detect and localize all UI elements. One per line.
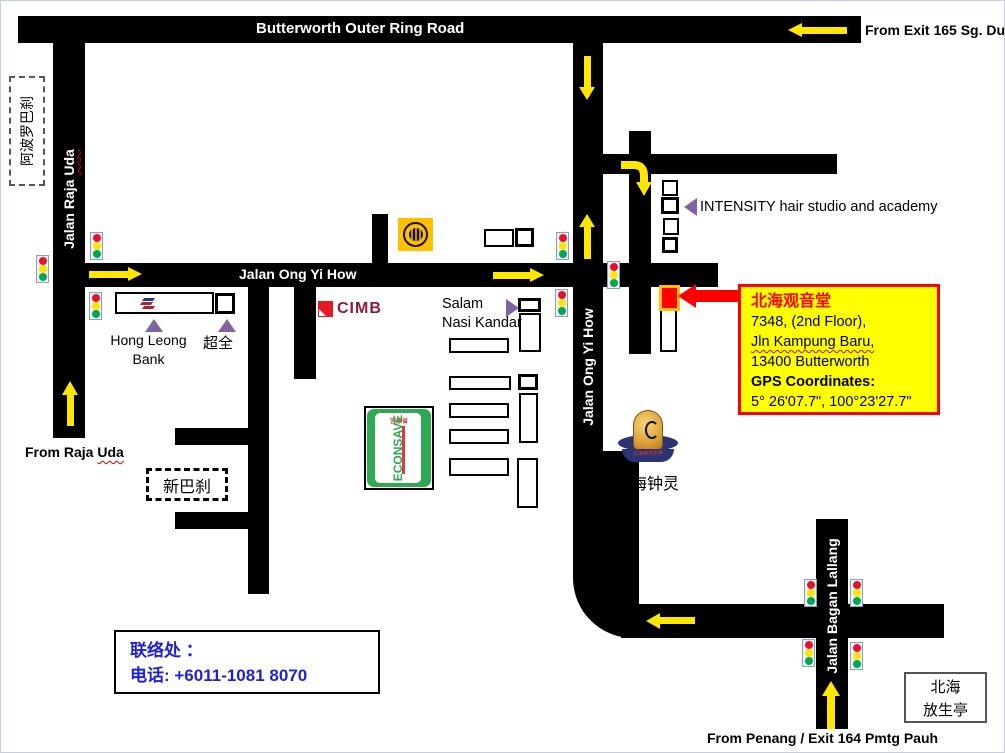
traffic-light <box>802 639 815 667</box>
destination-address-3: 13400 Butterworth <box>751 352 927 372</box>
traffic-light <box>89 292 102 320</box>
traffic-light <box>607 261 620 289</box>
new-market-box: 新巴刹 <box>146 468 228 501</box>
traffic-light <box>804 579 817 607</box>
building-chao-quan <box>215 293 235 314</box>
building-intensity <box>661 197 679 214</box>
destination-arrow <box>695 290 739 302</box>
intensity-label: INTENSITY hair studio and academy <box>700 199 937 215</box>
fang-sheng-ting-box: 北海 放生亭 <box>904 672 987 723</box>
building-hong-leong-bank <box>115 292 214 314</box>
building <box>449 376 511 390</box>
contact-line2: 电话: +6011-1081 8070 <box>130 663 364 688</box>
pointer-left-intensity-icon <box>684 198 697 216</box>
contact-line1: 联络处 ： <box>130 638 364 663</box>
traffic-light <box>850 579 863 607</box>
traffic-light <box>556 232 569 260</box>
gps-label: GPS Coordinates: <box>751 372 927 392</box>
building <box>662 237 678 253</box>
road-west-stub-1 <box>175 428 248 445</box>
chung-ling-label: 北海钟灵 <box>615 470 679 494</box>
building <box>449 429 509 444</box>
road-top-stub <box>372 214 388 263</box>
hong-leong-bank-label: Hong Leong Bank <box>106 331 191 369</box>
apollo-market-label: 阿波罗巴刹 <box>17 96 37 166</box>
road-west-stub-2 <box>175 512 248 529</box>
from-exit-165-label: From Exit 165 Sg. Dua <box>865 22 1005 38</box>
building <box>518 374 538 390</box>
chao-quan-label: 超全 <box>203 332 233 353</box>
building-destination-block <box>660 308 677 352</box>
building <box>519 393 538 443</box>
econsave-store: 宜康省 ECONSAVE <box>364 406 434 490</box>
traffic-light <box>850 642 863 670</box>
econsave-label: ECONSAVE <box>391 411 405 485</box>
building <box>484 229 514 247</box>
from-raja-uda-label: From Raja Uda <box>25 444 124 460</box>
traffic-light <box>90 232 103 260</box>
destination-name: 北海观音堂 <box>751 292 927 312</box>
cimb-logo-icon <box>318 301 333 317</box>
chung-ling-badge-logo-icon: 北海钟灵中学 <box>618 409 678 467</box>
building <box>519 313 541 352</box>
traffic-light <box>555 289 568 317</box>
destination-address-1: 7348, (2nd Floor), <box>751 312 927 332</box>
building <box>449 403 509 418</box>
building <box>449 338 509 353</box>
cimb-label: CIMB <box>337 300 382 318</box>
pointer-up-chao-quan-icon <box>218 319 236 332</box>
building <box>515 228 534 247</box>
bagan-lallang-label: Jalan Bagan Lallang <box>824 521 840 691</box>
hong-leong-logo-icon <box>140 296 156 312</box>
maybank-tiger-logo-icon <box>398 218 433 251</box>
building <box>663 218 679 235</box>
road-cimb-stub <box>294 287 316 379</box>
ong-yi-how-horizontal-label: Jalan Ong Yi How <box>239 266 356 282</box>
building <box>449 458 509 476</box>
apollo-market-box: 阿波罗巴刹 <box>9 76 45 186</box>
destination-address-2: Jln Kampung Baru, <box>751 332 874 352</box>
ong-yi-how-vertical-label: Jalan Ong Yi How <box>580 302 596 432</box>
raja-uda-label: Jalan Raja Uda <box>61 139 77 259</box>
destination-arrow-head-icon <box>678 284 696 308</box>
building <box>662 180 678 196</box>
arrow-turn-right-curved <box>619 156 653 198</box>
building <box>517 458 538 508</box>
ring-road-label: Butterworth Outer Ring Road <box>256 20 464 37</box>
direction-map: Butterworth Outer Ring Road Jalan Ong Yi… <box>0 0 1005 753</box>
contact-box: 联络处 ： 电话: +6011-1081 8070 <box>114 630 380 694</box>
new-market-label: 新巴刹 <box>163 473 211 497</box>
destination-callout: 北海观音堂 7348, (2nd Floor), Jln Kampung Bar… <box>738 284 940 415</box>
gps-value: 5° 26'07.7", 100°23'27.7" <box>751 392 927 412</box>
from-penang-label: From Penang / Exit 164 Pmtg Pauh <box>707 730 938 746</box>
salam-nasi-kandar-label: Salam Nasi Kandar <box>442 295 522 333</box>
destination-marker <box>659 285 680 311</box>
traffic-light <box>36 255 49 283</box>
road-middle-column <box>248 287 269 594</box>
